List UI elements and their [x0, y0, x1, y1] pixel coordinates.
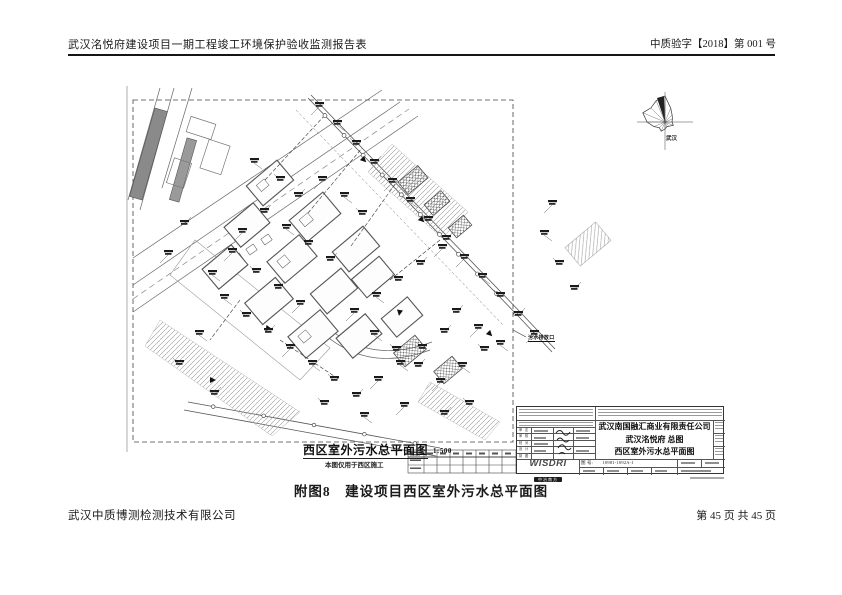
sheet-count-note — [690, 477, 724, 479]
drawing-no-label: 图 号: — [581, 460, 593, 465]
report-doc-number: 中质验字【2018】第 001 号 — [650, 36, 776, 51]
footer-page-number: 第 45 页 共 45 页 — [696, 507, 776, 523]
drawing-name: 西区室外污水总平面图 — [596, 446, 713, 459]
project-name: 武汉洺悦府 总图 — [596, 434, 713, 447]
contract-no-row — [519, 422, 593, 426]
owner-company: 武汉南国融汇商业有限责任公司 — [596, 421, 713, 434]
report-header-title: 武汉洺悦府建设项目一期工程竣工环境保护验收监测报告表 — [68, 36, 367, 52]
rev-row-label: 审 核 — [519, 433, 529, 439]
rev-row-label: 设 计 — [519, 446, 529, 452]
rev-row-label: 校 对 — [519, 440, 529, 446]
copyright-note-cn — [519, 409, 593, 418]
wisdri-logo: WISDRI 中冶南方 — [519, 460, 577, 474]
title-block-text: 武汉南国融汇商业有限责任公司 武汉洺悦府 总图 西区室外污水总平面图 — [596, 421, 713, 459]
title-block: 审 定 审 核 校 对 设 计 制 图 武汉南国融汇商业有限责任公司 武汉洺悦府… — [516, 406, 724, 474]
header-rule — [68, 54, 775, 56]
plan-subtitle: 本图仅用于西区施工 — [325, 459, 384, 469]
drawing-no-value: 10981-1092A-1 — [603, 460, 634, 465]
sewage-outfall-label: 污水排放口 — [528, 334, 555, 342]
footer-company: 武汉中质博测检测技术有限公司 — [68, 507, 236, 523]
signature-scribble — [554, 428, 576, 458]
wind-rose-label: 武汉 — [666, 134, 677, 142]
drawing-number-row: 图 号: 10981-1092A-1 — [581, 460, 675, 468]
wind-rose — [637, 92, 693, 150]
rev-row-label: 审 定 — [519, 427, 529, 433]
rev-row-label: 制 图 — [519, 453, 529, 459]
logo-wordmark: WISDRI — [519, 460, 577, 468]
plan-scale: 1:500 — [433, 447, 452, 455]
plan-title-text: 西区室外污水总平面图 — [303, 443, 428, 459]
plan-title: 西区室外污水总平面图1:500 — [303, 441, 452, 458]
report-page: 武汉洺悦府建设项目一期工程竣工环境保护验收监测报告表 中质验字【2018】第 0… — [0, 0, 842, 595]
copyright-note-en — [598, 409, 722, 418]
figure-caption: 附图8 建设项目西区室外污水总平面图 — [0, 480, 842, 500]
